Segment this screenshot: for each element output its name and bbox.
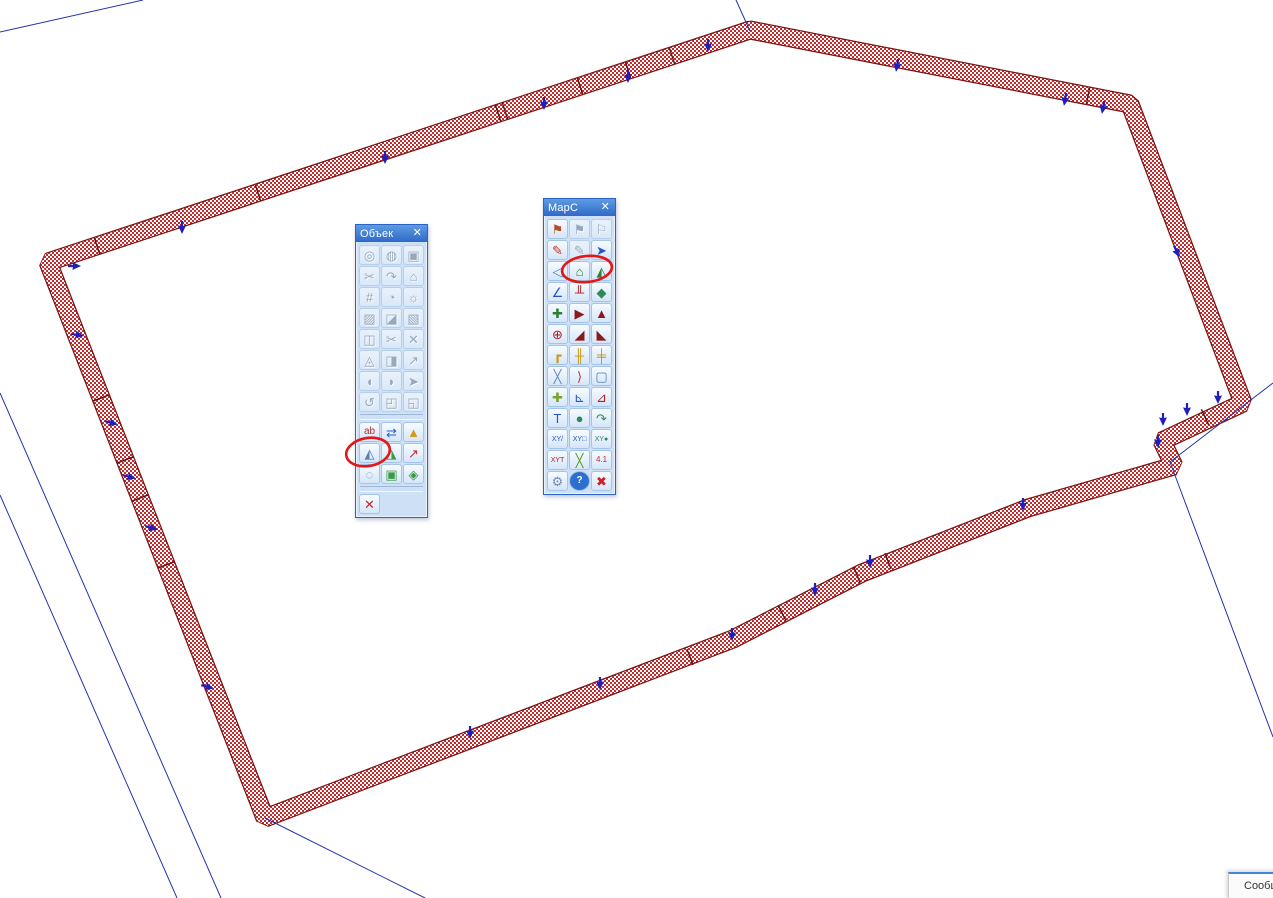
- contour-arrow-icon: ➤: [403, 371, 424, 391]
- parcel-map: [0, 0, 1273, 898]
- select-contour-icon[interactable]: ▢: [591, 366, 612, 386]
- message-window[interactable]: Сообщ: [1228, 872, 1273, 898]
- move-vertices-icon[interactable]: ⇄: [381, 422, 402, 442]
- map-canvas[interactable]: Объек ✕ ◎◍▣✂↷⌂#◔☼▨◪▧◫✂✕◬◨↗◖◗➤↺◰◱ab⇄▲◭◮↗◌…: [0, 0, 1273, 898]
- hatch-corner-icon: ◪: [381, 308, 402, 328]
- close-icon[interactable]: ✕: [599, 202, 612, 213]
- edit-polygon-icon[interactable]: ▲: [403, 422, 424, 442]
- contour-right-icon: ◗: [381, 371, 402, 391]
- brush-icon[interactable]: ✎: [547, 240, 568, 260]
- toolbar-title: Объек: [360, 228, 393, 240]
- toolbar-mapc-body: ⚑⚑⚐✎✎➤◁⌂◭∠╨◆✚▶▲⊕◢◣┏╫╪╳⟩▢✚⊾⊿T●↷XY/XY□XY●X…: [544, 216, 615, 494]
- fill-area-icon: ◔: [381, 287, 402, 307]
- xy-point-icon[interactable]: XY●: [591, 429, 612, 449]
- copy-frame-icon: ◰: [381, 392, 402, 412]
- direction-arrow-icon[interactable]: ↗: [403, 443, 424, 463]
- grid-icon: #: [359, 287, 380, 307]
- exit-icon[interactable]: ✖: [591, 471, 612, 491]
- toolbar-divider: [360, 486, 423, 492]
- direction-marker: [1214, 391, 1222, 404]
- message-window-title: Сообщ: [1244, 880, 1273, 892]
- paste-frame-icon: ◱: [403, 392, 424, 412]
- brush-gray-icon: ✎: [569, 240, 590, 260]
- toolbar-objects-titlebar[interactable]: Объек ✕: [356, 225, 427, 242]
- toolbar-mapc: MapC ✕ ⚑⚑⚐✎✎➤◁⌂◭∠╨◆✚▶▲⊕◢◣┏╫╪╳⟩▢✚⊾⊿T●↷XY/…: [543, 198, 616, 495]
- frame-edit-icon: ◫: [359, 329, 380, 349]
- rail-marks-icon[interactable]: ╨: [569, 282, 590, 302]
- query-area-icon: ◬: [359, 350, 380, 370]
- curve-right-icon[interactable]: ⟩: [569, 366, 590, 386]
- split-line-icon: ↗: [403, 350, 424, 370]
- split-surface-icon[interactable]: ◭: [591, 261, 612, 281]
- cut-line-icon: ✂: [381, 329, 402, 349]
- xy-contour-icon[interactable]: XY□: [569, 429, 590, 449]
- center-cross-icon[interactable]: ⊕: [547, 324, 568, 344]
- cut-object-icon: ✂: [359, 266, 380, 286]
- triangle-left-icon[interactable]: ◁: [547, 261, 568, 281]
- cross-lines-icon[interactable]: ╳: [547, 366, 568, 386]
- parcel-boundary: [48, 30, 1243, 818]
- toolbar-divider: [360, 414, 423, 420]
- toolbar-mapc-titlebar[interactable]: MapC ✕: [544, 199, 615, 216]
- toolbar-objects-body: ◎◍▣✂↷⌂#◔☼▨◪▧◫✂✕◬◨↗◖◗➤↺◰◱ab⇄▲◭◮↗◌▣◈✕: [356, 242, 427, 517]
- move-contour-icon: ⌂: [403, 266, 424, 286]
- contour-left-icon: ◖: [359, 371, 380, 391]
- insert-object-icon[interactable]: ▣: [381, 464, 402, 484]
- toolbar-objects: Объек ✕ ◎◍▣✂↷⌂#◔☼▨◪▧◫✂✕◬◨↗◖◗➤↺◰◱ab⇄▲◭◮↗◌…: [355, 224, 428, 518]
- angle-arc-red-icon[interactable]: ⊿: [591, 387, 612, 407]
- flag-polygon-icon[interactable]: ◈: [403, 464, 424, 484]
- text-table-icon[interactable]: T: [547, 408, 568, 428]
- map-line: [0, 495, 177, 898]
- pick-pencil-icon[interactable]: ➤: [591, 240, 612, 260]
- coord-list-icon[interactable]: 4.1: [591, 450, 612, 470]
- smooth-arc-icon: ↷: [381, 266, 402, 286]
- close-icon[interactable]: ✕: [411, 228, 424, 239]
- create-object-icon[interactable]: ⌂: [569, 261, 590, 281]
- map-line: [0, 0, 143, 32]
- angle-arc-icon[interactable]: ⊾: [569, 387, 590, 407]
- pipe-corner-icon[interactable]: ┏: [547, 345, 568, 365]
- align-height-icon[interactable]: ╪: [591, 345, 612, 365]
- center-point-icon: ◎: [359, 245, 380, 265]
- xy-line-icon[interactable]: XY/: [547, 429, 568, 449]
- dashed-cross-icon[interactable]: ╳: [569, 450, 590, 470]
- direction-marker: [1159, 413, 1167, 426]
- map-line: [1170, 462, 1273, 737]
- align-width-icon[interactable]: ╫: [569, 345, 590, 365]
- xy-text-icon[interactable]: XYT: [547, 450, 568, 470]
- add-point-line-icon[interactable]: ✚: [547, 303, 568, 323]
- merge-area-icon: ◨: [381, 350, 402, 370]
- flag-right-icon[interactable]: ▶: [569, 303, 590, 323]
- map-line: [265, 818, 425, 898]
- hatched-circle-icon: ◍: [381, 245, 402, 265]
- angle-icon[interactable]: ∠: [547, 282, 568, 302]
- stamp-flag-icon[interactable]: ⚑: [547, 219, 568, 239]
- wrench-icon[interactable]: ⚙: [547, 471, 568, 491]
- stamp-list-icon: ⚐: [591, 219, 612, 239]
- delete-node-icon: ✕: [403, 329, 424, 349]
- add-node-icon[interactable]: ✚: [547, 387, 568, 407]
- direction-marker: [1183, 403, 1191, 416]
- slope-icon[interactable]: ▲: [591, 303, 612, 323]
- diamond-icon[interactable]: ◆: [591, 282, 612, 302]
- label-ab-icon[interactable]: ab: [359, 422, 380, 442]
- lasso-icon[interactable]: ◌: [359, 464, 380, 484]
- copy-object-icon: ▣: [403, 245, 424, 265]
- sphere-icon[interactable]: ●: [569, 408, 590, 428]
- slope-base-icon[interactable]: ◣: [591, 324, 612, 344]
- double-slope-icon[interactable]: ◢: [569, 324, 590, 344]
- toolbar-title: MapC: [548, 202, 578, 214]
- curve-arrow-icon[interactable]: ↷: [591, 408, 612, 428]
- stamp-gray-icon: ⚑: [569, 219, 590, 239]
- help-icon[interactable]: ?: [569, 471, 590, 491]
- double-polygon-icon[interactable]: ◮: [381, 443, 402, 463]
- hatch-square-icon: ▨: [359, 308, 380, 328]
- hatch-diag-icon: ▧: [403, 308, 424, 328]
- cancel-edit-icon[interactable]: ✕: [359, 494, 380, 514]
- undo-contour-icon: ↺: [359, 392, 380, 412]
- gear-area-icon: ☼: [403, 287, 424, 307]
- hatch-polygon-cut-icon[interactable]: ◭: [359, 443, 380, 463]
